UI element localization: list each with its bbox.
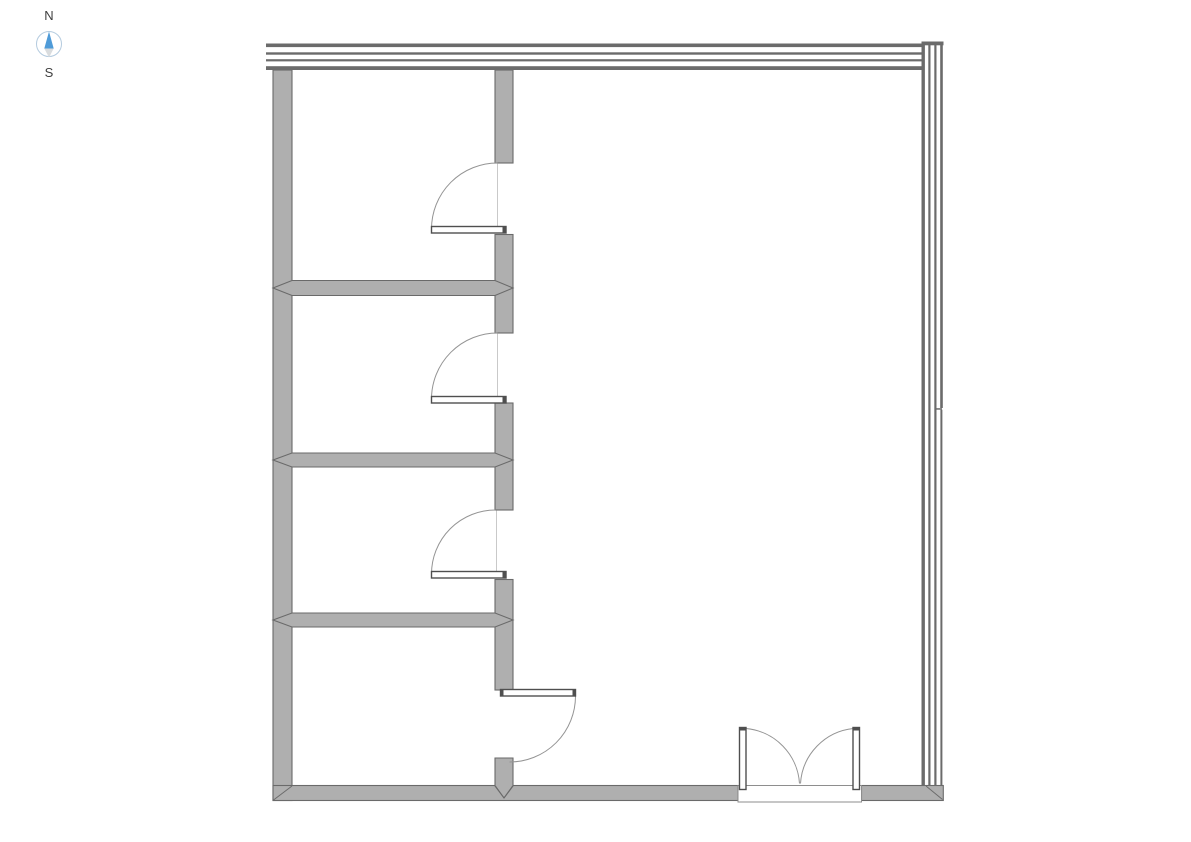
door-1-leaf[interactable]	[432, 227, 507, 234]
door-4-swing-arc[interactable]	[510, 696, 576, 762]
double-door-right-leaf[interactable]	[853, 728, 860, 790]
east-curtain-wall-line-3[interactable]	[934, 45, 936, 786]
floor-plan-drawing	[0, 0, 1191, 842]
east-curtain-wall-line-4-upper[interactable]	[940, 45, 943, 408]
door-4-latch-cap	[573, 690, 576, 697]
east-curtain-wall-line-2[interactable]	[928, 45, 930, 786]
door-3-hinge-cap	[503, 572, 507, 579]
door-2-leaf[interactable]	[432, 397, 507, 404]
partition-wall-2[interactable]	[273, 453, 513, 467]
south-wall-east-segment[interactable]	[862, 786, 944, 801]
double-door-left-leaf-cap	[740, 728, 747, 731]
floor-plan-canvas: N S	[0, 0, 1191, 842]
double-door-left-leaf[interactable]	[740, 728, 747, 790]
double-door-right-leaf-cap	[853, 728, 860, 731]
partition-wall-1[interactable]	[273, 281, 513, 296]
partition-wall-3[interactable]	[273, 613, 513, 627]
north-curtain-wall-line-3[interactable]	[266, 59, 922, 61]
compass-rose-icon	[29, 23, 69, 65]
door-4-leaf[interactable]	[501, 690, 576, 697]
door-2-swing-arc[interactable]	[432, 333, 498, 399]
door-3-leaf[interactable]	[432, 572, 507, 579]
north-curtain-wall-line-4[interactable]	[266, 66, 922, 70]
interior-wall-segment-4[interactable]	[495, 580, 513, 691]
north-curtain-wall-line-2[interactable]	[266, 52, 922, 54]
east-curtain-wall-line-4-lower[interactable]	[940, 410, 942, 786]
double-door-left-swing-arc[interactable]	[746, 729, 800, 784]
compass-south-label: S	[29, 65, 69, 80]
door-2-hinge-cap	[503, 397, 507, 404]
double-door-right-swing-arc[interactable]	[801, 729, 854, 784]
compass-north-label: N	[29, 8, 69, 23]
double-door-threshold[interactable]	[738, 786, 862, 803]
door-4-hinge-cap	[501, 690, 504, 697]
east-curtain-wall-line-1[interactable]	[922, 42, 925, 786]
compass[interactable]: N S	[29, 8, 69, 80]
north-curtain-wall-line-1[interactable]	[266, 44, 922, 48]
interior-wall-segment-1[interactable]	[495, 70, 513, 163]
left-exterior-wall[interactable]	[273, 70, 292, 801]
east-curtain-wall-panel-break	[936, 408, 942, 410]
door-1-swing-arc[interactable]	[432, 163, 498, 229]
door-1-hinge-cap	[503, 227, 507, 234]
door-3-swing-arc[interactable]	[432, 510, 496, 574]
